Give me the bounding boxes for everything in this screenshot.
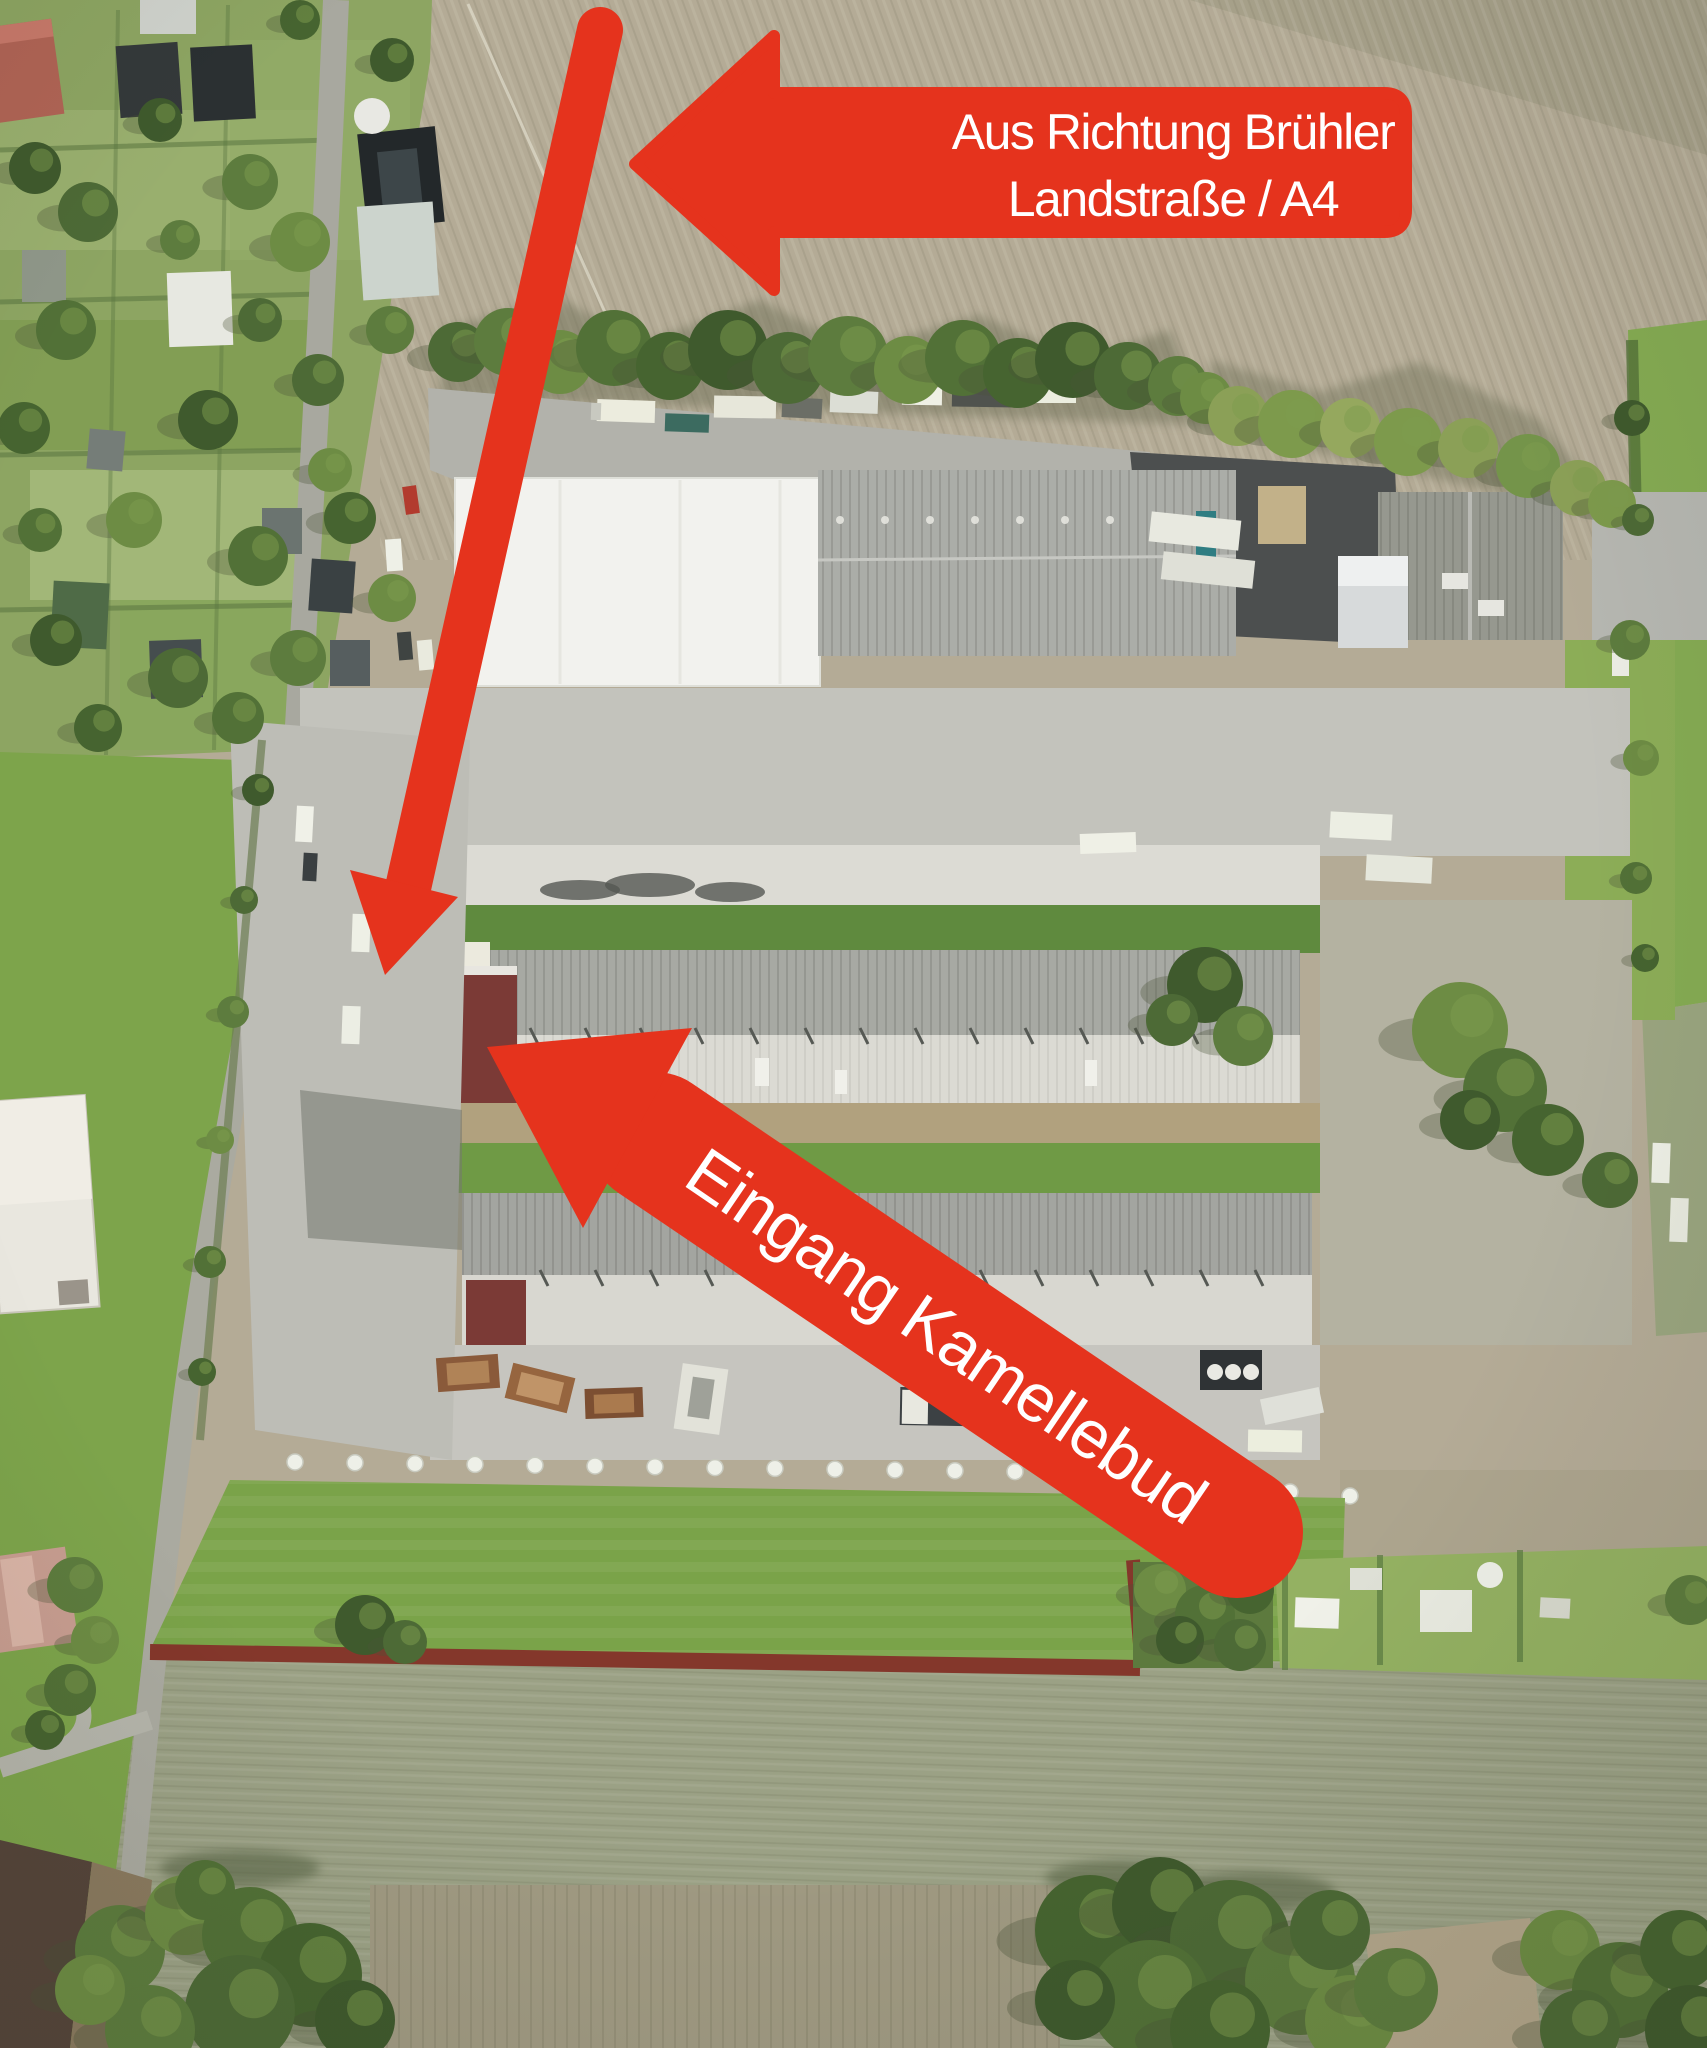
direction-banner-line2: Landstraße / A4 bbox=[948, 166, 1398, 233]
direction-banner-line1: Aus Richtung Brühler bbox=[948, 99, 1398, 166]
aerial-photo bbox=[0, 0, 1707, 2048]
direction-banner-label: Aus Richtung Brühler Landstraße / A4 bbox=[948, 96, 1398, 236]
vignette bbox=[0, 0, 1707, 2048]
annotated-aerial-view: Aus Richtung Brühler Landstraße / A4 Ein… bbox=[0, 0, 1707, 2048]
